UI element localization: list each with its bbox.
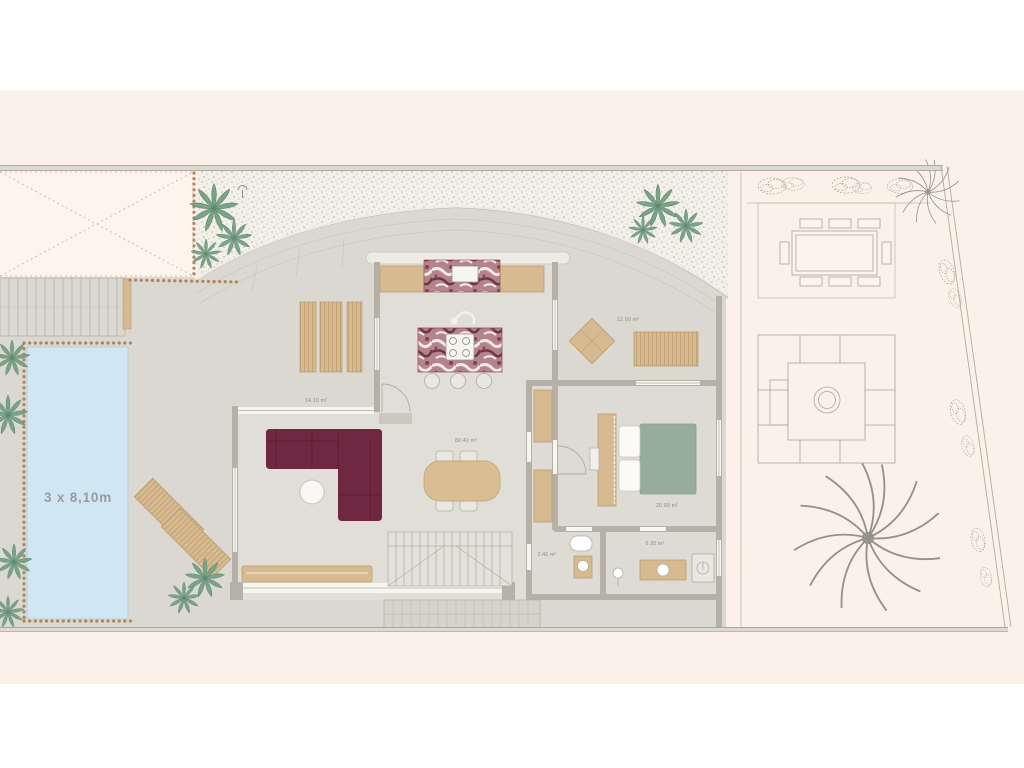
bedroom-area-label: 20.00 m² xyxy=(656,503,678,509)
wardrobe-south xyxy=(534,470,552,522)
toilet xyxy=(570,536,592,551)
dining-table xyxy=(424,461,500,501)
duvet xyxy=(640,424,696,494)
swimming-pool: 3 x 8,10m xyxy=(27,347,128,619)
south-pier-west xyxy=(230,582,243,600)
bath-south-wall xyxy=(526,594,722,600)
kitchen xyxy=(366,252,570,292)
pedestal-sink xyxy=(613,568,623,578)
kitchen-counter-right xyxy=(500,266,544,292)
coffee-table xyxy=(300,480,324,504)
timber-deck-strip xyxy=(123,279,131,329)
interior-staircase xyxy=(388,532,512,586)
covered-terrace-area-label: 14.10 m² xyxy=(305,398,327,404)
pillow-1 xyxy=(619,426,640,457)
bar-stools xyxy=(425,374,492,389)
kitchen-sink xyxy=(452,266,478,282)
bathroom-divider-wall xyxy=(600,532,606,598)
floor-plan-canvas: 3 x 8,10m xyxy=(0,0,1024,768)
daybed xyxy=(634,332,698,366)
entry-stairs xyxy=(0,278,125,336)
pool-dimensions-label: 3 x 8,10m xyxy=(44,490,112,505)
kitchen-counter-left xyxy=(380,266,424,292)
sink-ensuite xyxy=(657,564,669,576)
driveway-parking xyxy=(0,171,194,277)
ensuite-area-label: 6.30 m² xyxy=(646,541,665,547)
site-plan: 3 x 8,10m xyxy=(0,0,1024,768)
wardrobe-north xyxy=(534,390,552,442)
bathroom-area-label: 2.40 m² xyxy=(538,552,557,558)
deck-slat-panels xyxy=(300,302,362,372)
living-area-label: 80.40 m² xyxy=(455,438,477,444)
exterior-steps xyxy=(384,600,540,628)
nightstand xyxy=(590,448,599,470)
cooktop xyxy=(446,334,474,360)
sink-small xyxy=(578,561,589,572)
sideboard-bench xyxy=(242,566,372,582)
outdoor-terrace-area-label: 12.90 m² xyxy=(617,317,639,323)
headboard-panel xyxy=(598,414,616,506)
outdoor-dining-table xyxy=(792,231,877,275)
pillow-2 xyxy=(619,460,640,491)
bed xyxy=(590,414,696,506)
